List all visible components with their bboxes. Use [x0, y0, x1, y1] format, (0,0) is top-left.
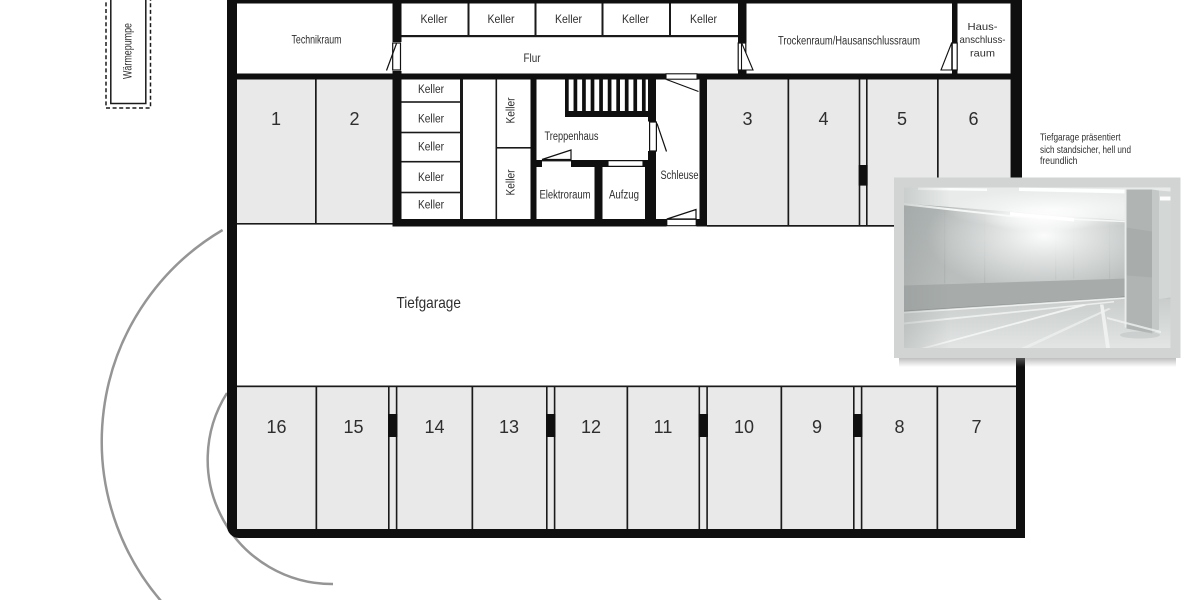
svg-text:Keller: Keller	[418, 172, 444, 184]
svg-text:7: 7	[971, 417, 981, 437]
svg-text:14: 14	[424, 417, 444, 437]
svg-text:Tiefgarage: Tiefgarage	[396, 295, 461, 312]
svg-text:Keller: Keller	[421, 12, 448, 26]
svg-text:11: 11	[654, 417, 673, 437]
svg-text:Flur: Flur	[524, 51, 541, 65]
svg-text:Trockenraum/Hausanschlussraum: Trockenraum/Hausanschlussraum	[778, 36, 920, 48]
svg-text:9: 9	[812, 417, 822, 437]
svg-text:Keller: Keller	[418, 142, 444, 154]
svg-text:Keller: Keller	[488, 12, 515, 26]
svg-text:anschluss-: anschluss-	[960, 34, 1006, 46]
svg-text:5: 5	[897, 109, 907, 129]
svg-text:Keller: Keller	[418, 114, 444, 126]
svg-text:15: 15	[343, 417, 363, 437]
svg-text:Keller: Keller	[555, 12, 582, 26]
svg-text:Keller: Keller	[506, 169, 518, 195]
svg-text:2: 2	[349, 109, 359, 129]
svg-text:4: 4	[818, 109, 828, 129]
svg-text:Treppenhaus: Treppenhaus	[545, 131, 599, 143]
svg-text:Keller: Keller	[506, 97, 518, 123]
svg-text:Wärmepumpe: Wärmepumpe	[123, 23, 135, 79]
svg-text:Aufzug: Aufzug	[609, 190, 639, 202]
svg-text:raum: raum	[970, 47, 995, 59]
svg-text:Elektroraum: Elektroraum	[540, 190, 591, 202]
svg-text:Technikraum: Technikraum	[292, 33, 342, 47]
svg-text:Keller: Keller	[418, 200, 444, 212]
svg-text:16: 16	[266, 417, 286, 437]
svg-text:8: 8	[894, 417, 904, 437]
svg-text:Haus-: Haus-	[968, 21, 999, 33]
svg-text:13: 13	[499, 417, 519, 437]
svg-text:Keller: Keller	[418, 84, 444, 96]
svg-text:12: 12	[581, 417, 601, 437]
svg-text:1: 1	[271, 109, 281, 129]
svg-text:3: 3	[742, 109, 752, 129]
svg-text:10: 10	[734, 417, 754, 437]
svg-text:Keller: Keller	[690, 12, 717, 26]
svg-text:freundlich: freundlich	[1040, 155, 1078, 167]
svg-text:Keller: Keller	[622, 12, 649, 26]
svg-text:Tiefgarage präsentiert: Tiefgarage präsentiert	[1040, 132, 1121, 144]
svg-text:6: 6	[968, 109, 978, 129]
svg-text:Schleuse: Schleuse	[661, 170, 699, 182]
